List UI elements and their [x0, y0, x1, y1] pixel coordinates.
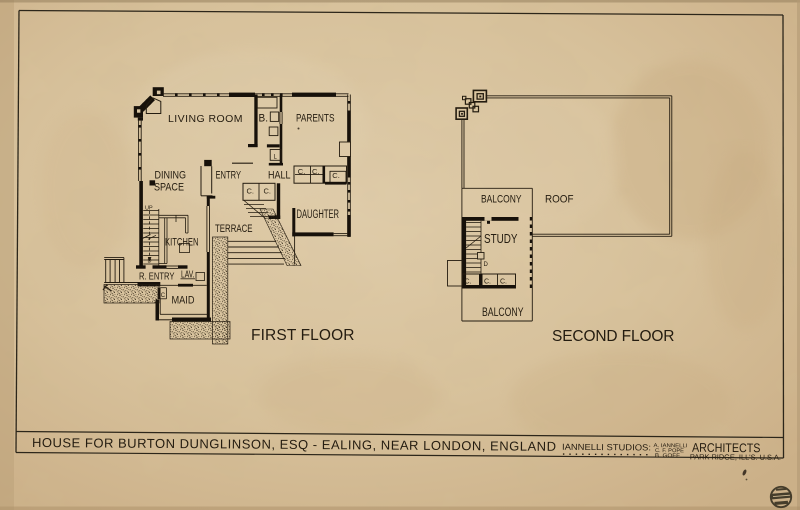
svg-text:MAID: MAID: [172, 294, 195, 306]
svg-text:BALCONY: BALCONY: [482, 307, 524, 319]
svg-text:ROOF: ROOF: [545, 193, 574, 205]
svg-text:STUDY: STUDY: [484, 231, 518, 246]
svg-text:C.: C.: [247, 187, 255, 196]
svg-text:C.: C.: [484, 279, 491, 286]
svg-text:DAUGHTER: DAUGHTER: [297, 209, 340, 221]
svg-text:PARENTS: PARENTS: [296, 112, 335, 124]
svg-text:BALCONY: BALCONY: [481, 193, 522, 205]
svg-text:R. ENTRY: R. ENTRY: [139, 270, 175, 282]
svg-text:C.: C.: [298, 167, 306, 176]
svg-text:FIRST FLOOR: FIRST FLOOR: [251, 327, 355, 344]
svg-text:C.: C.: [332, 171, 340, 180]
svg-text:TERRACE: TERRACE: [215, 223, 253, 235]
svg-text:C: C: [161, 293, 166, 299]
svg-text:SPACE: SPACE: [154, 181, 184, 193]
svg-text:B.: B.: [259, 112, 269, 124]
svg-text:C.: C.: [500, 279, 507, 286]
svg-text:IANNELLI STUDIOS:: IANNELLI STUDIOS:: [562, 442, 651, 453]
svg-text:UP: UP: [145, 206, 153, 212]
svg-text:C.: C.: [264, 187, 272, 196]
svg-text:D: D: [484, 262, 489, 268]
svg-text:KITCHEN: KITCHEN: [165, 236, 199, 248]
svg-text:HALL: HALL: [268, 169, 291, 181]
svg-text:DINING: DINING: [155, 169, 187, 181]
svg-text:C.: C.: [312, 167, 320, 176]
svg-text:C.: C.: [465, 279, 472, 286]
svg-text:SECOND FLOOR: SECOND FLOOR: [552, 328, 675, 345]
svg-text:LIVING ROOM: LIVING ROOM: [168, 113, 243, 125]
svg-text:B. GOFF: B. GOFF: [655, 453, 681, 459]
svg-text:ENTRY: ENTRY: [216, 169, 242, 181]
svg-text:PARK RIDGE, ILL'S. U.S.A.: PARK RIDGE, ILL'S. U.S.A.: [690, 452, 781, 462]
svg-text:D: D: [148, 259, 152, 265]
